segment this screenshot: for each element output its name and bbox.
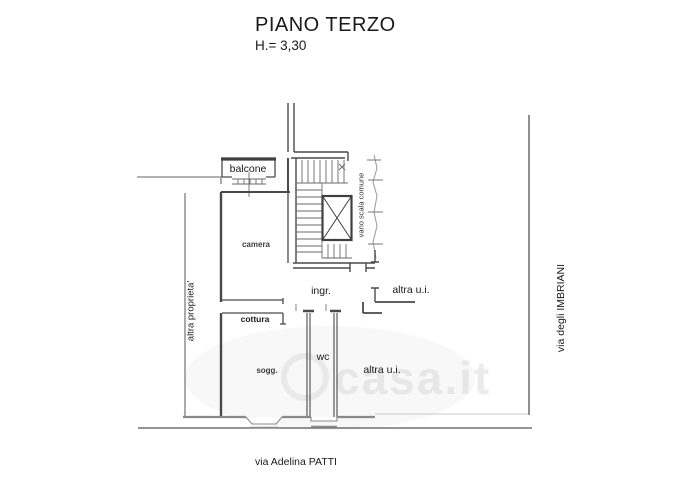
room-label-ingresso: ingr. xyxy=(311,285,331,297)
room-label-soggiorno: sogg. xyxy=(256,366,277,375)
ingresso-right-wall xyxy=(371,250,379,302)
elevator-shaft xyxy=(323,196,352,240)
stairwell-broken-boundary xyxy=(367,155,383,258)
room-label-cottura: cottura xyxy=(241,314,270,324)
watermark-text: casa.it xyxy=(334,352,491,404)
room-label-camera: camera xyxy=(242,240,271,249)
right-unit-wall xyxy=(363,302,415,313)
room-label-vano-scala: vano scala comune xyxy=(357,173,366,238)
room-label-wc: wc xyxy=(316,351,330,363)
street-label-via-adelina-patti: via Adelina PATTI xyxy=(255,456,337,468)
room-label-balcone: balcone xyxy=(230,163,267,175)
stairwell: vano scala comune xyxy=(288,103,383,272)
floor-height-note: H.= 3,30 xyxy=(255,38,306,53)
label-altra-proprieta: altra proprieta' xyxy=(186,281,197,342)
room-label-altra-ui-top: altra u.i. xyxy=(392,284,429,296)
street-label-via-degli-imbriani: via degli IMBRIANI xyxy=(555,264,567,352)
wc-window xyxy=(311,417,337,421)
soggiorno-window xyxy=(246,417,282,424)
balcone-window xyxy=(232,172,266,197)
room-label-altra-ui-bottom: altra u.i. xyxy=(363,364,400,376)
page-title: PIANO TERZO xyxy=(255,14,396,36)
left-neighbor-wall xyxy=(137,177,221,184)
floorplan-canvas: PIANO TERZO H.= 3,30 casa.it xyxy=(0,0,673,500)
